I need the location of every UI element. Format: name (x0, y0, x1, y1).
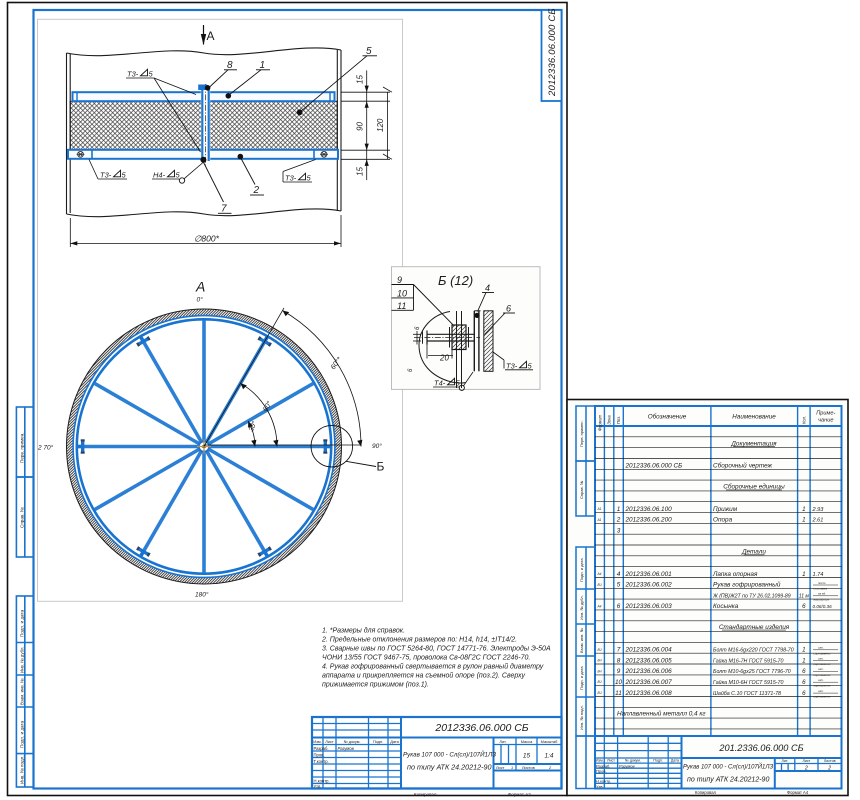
svg-text:Наименование: Наименование (732, 414, 776, 421)
svg-text:Т3-: Т3- (127, 70, 139, 79)
svg-text:Гайка М10-6Н ГОСТ 5915-70: Гайка М10-6Н ГОСТ 5915-70 (713, 679, 784, 686)
svg-text:2012336.06.000 СБ: 2012336.06.000 СБ (547, 8, 558, 97)
svg-text:А4: А4 (597, 572, 602, 576)
svg-text:20: 20 (439, 354, 449, 363)
svg-text:Т3-: Т3- (285, 174, 297, 183)
svg-text:Копировал: Копировал (695, 790, 717, 795)
svg-text:9: 9 (397, 275, 402, 285)
svg-text:Изм.: Изм. (313, 739, 321, 744)
svg-text:Утв.: Утв. (596, 784, 604, 789)
svg-text:А: А (207, 29, 215, 43)
svg-text:Формат: Формат (597, 414, 602, 431)
svg-text:Инв. № дубл.: Инв. № дубл. (19, 646, 24, 673)
svg-text:А1: А1 (597, 518, 602, 522)
svg-text:1.74: 1.74 (813, 572, 824, 578)
svg-text:6: 6 (802, 603, 806, 610)
svg-text:15: 15 (356, 167, 365, 176)
svg-text:4: 4 (485, 283, 490, 293)
svg-text:1: 1 (802, 571, 805, 578)
svg-text:2: 2 (804, 766, 808, 772)
svg-text:4. Рукав гофрированный свертыв: 4. Рукав гофрированный свертывается в ру… (322, 663, 544, 671)
svg-text:Приме-: Приме- (816, 411, 835, 417)
svg-text:аппарата и прикрепляется на съ: аппарата и прикрепляется на съемной опор… (322, 672, 526, 680)
svg-text:Формат А4: Формат А4 (787, 790, 809, 795)
svg-text:8: 8 (227, 60, 233, 71)
svg-text:7: 7 (617, 647, 621, 654)
svg-text:Т3-: Т3- (100, 171, 112, 180)
svg-text:Взам. инв. №: Взам. инв. № (579, 628, 584, 653)
svg-text:Б (12): Б (12) (438, 273, 473, 288)
svg-text:2012336.06.000 СБ: 2012336.06.000 СБ (625, 462, 683, 469)
svg-text:90°: 90° (372, 442, 382, 450)
svg-text:сортамент: сортамент (814, 695, 831, 699)
svg-text:Документация: Документация (730, 440, 777, 447)
svg-text:2012336.06.001: 2012336.06.001 (625, 571, 673, 578)
svg-text:Формат А2: Формат А2 (508, 792, 531, 797)
svg-text:Лапка опорная: Лапка опорная (712, 571, 758, 578)
svg-text:2012336.06.005: 2012336.06.005 (625, 657, 673, 664)
svg-text:1. *Размеры для справок.: 1. *Размеры для справок. (322, 627, 405, 635)
svg-text:пост.: пост. (818, 581, 826, 585)
svg-text:1: 1 (802, 517, 805, 524)
svg-text:находится: находится (814, 597, 830, 601)
svg-text:Инв. № подл.: Инв. № подл. (19, 755, 24, 784)
svg-text:8: 8 (617, 657, 621, 664)
svg-text:А4: А4 (597, 605, 602, 609)
svg-text:А: А (195, 279, 205, 295)
svg-text:Детали: Детали (741, 549, 766, 556)
svg-text:∅800*: ∅800* (194, 234, 220, 244)
svg-text:Поз.: Поз. (616, 416, 621, 424)
svg-text:2 70°: 2 70° (37, 444, 54, 452)
svg-text:Сборочные единицы: Сборочные единицы (723, 483, 785, 491)
svg-text:6: 6 (802, 668, 806, 675)
svg-text:чание: чание (818, 418, 833, 424)
svg-text:Прижим: Прижим (713, 506, 738, 513)
svg-text:шт.: шт. (818, 689, 824, 693)
svg-text:Разумов: Разумов (338, 746, 355, 751)
svg-text:Подп. и дата: Подп. и дата (19, 720, 24, 748)
svg-text:Справ. №: Справ. № (19, 507, 24, 528)
svg-text:Зона: Зона (607, 415, 612, 425)
svg-text:3. Сварные швы по ГОСТ 5264-80: 3. Сварные швы по ГОСТ 5264-80, ГОСТ 147… (322, 645, 551, 653)
svg-text:Сборочный чертеж: Сборочный чертеж (713, 461, 773, 469)
svg-text:10: 10 (397, 289, 407, 299)
svg-text:Инв. № дубл.: Инв. № дубл. (579, 595, 584, 620)
svg-text:2012336.06.008: 2012336.06.008 (625, 690, 673, 697)
svg-text:2012336.06.200: 2012336.06.200 (625, 517, 673, 524)
svg-text:2012336.06.007: 2012336.06.007 (625, 679, 673, 686)
svg-text:10: 10 (615, 679, 623, 686)
svg-text:за ед.: за ед. (817, 592, 826, 596)
svg-text:Лист: Лист (607, 759, 615, 763)
svg-text:15: 15 (356, 75, 365, 84)
svg-text:сортамент: сортамент (814, 684, 831, 688)
svg-text:2012336.06.002: 2012336.06.002 (625, 582, 673, 589)
svg-text:Утв.: Утв. (314, 784, 322, 789)
svg-text:2.61: 2.61 (812, 518, 824, 524)
svg-text:2: 2 (616, 517, 621, 524)
svg-text:6: 6 (802, 679, 806, 686)
svg-text:2. Предельные отклонения разме: 2. Предельные отклонения размеров по: Н1… (321, 636, 517, 644)
svg-text:Подп. и дата: Подп. и дата (579, 558, 584, 582)
svg-text:180°: 180° (195, 591, 209, 599)
svg-text:1: 1 (260, 60, 266, 71)
svg-text:Болт М10-6gх25 ГОСТ 7796-70: Болт М10-6gх25 ГОСТ 7796-70 (713, 669, 791, 675)
svg-text:11: 11 (615, 690, 622, 697)
svg-text:6: 6 (802, 690, 806, 697)
svg-text:Пров.: Пров. (314, 752, 325, 757)
svg-text:по типу АТК 24.20212-90: по типу АТК 24.20212-90 (407, 763, 492, 772)
svg-text:№ докум.: № докум. (343, 739, 360, 744)
svg-text:1: 1 (802, 657, 805, 664)
svg-text:2012336.06.100: 2012336.06.100 (625, 506, 673, 513)
svg-text:сортамент: сортамент (814, 651, 831, 655)
svg-text:4: 4 (617, 571, 621, 578)
svg-text:2: 2 (827, 766, 831, 772)
svg-text:Масса: Масса (521, 739, 533, 744)
svg-text:2: 2 (253, 185, 260, 196)
svg-text:Листов: Листов (824, 759, 836, 763)
svg-text:Дата: Дата (671, 759, 679, 763)
svg-text:1: 1 (802, 506, 805, 513)
svg-text:Разраб.: Разраб. (314, 746, 329, 751)
svg-text:ЧОНИ 13/55 ГОСТ 9467-75, прово: ЧОНИ 13/55 ГОСТ 9467-75, проволока Св-08… (322, 655, 530, 662)
svg-text:сортамент: сортамент (814, 662, 831, 666)
svg-text:сортамент: сортамент (814, 673, 831, 677)
svg-text:по типу АТК 24.20212-90: по типу АТК 24.20212-90 (687, 777, 769, 784)
svg-text:1: 1 (802, 647, 805, 654)
svg-text:0.06/0.36: 0.06/0.36 (813, 604, 833, 609)
svg-text:3: 3 (617, 527, 621, 534)
svg-text:А1: А1 (597, 507, 602, 511)
svg-text:шт.: шт. (818, 667, 824, 671)
svg-text:Т.контр.: Т.контр. (314, 759, 329, 764)
svg-text:Инв. № подл.: Инв. № подл. (579, 705, 584, 730)
svg-text:Лист: Лист (325, 739, 334, 744)
svg-text:11 м: 11 м (799, 593, 810, 599)
svg-text:шт.: шт. (818, 646, 824, 650)
svg-text:Рукав 107 000 - Сл(сл)/107Й1ЛЗ: Рукав 107 000 - Сл(сл)/107Й1ЛЗ (683, 763, 774, 771)
svg-text:шт.: шт. (818, 656, 824, 660)
svg-text:Н.контр.: Н.контр. (314, 778, 330, 783)
svg-text:2012336.06.003: 2012336.06.003 (625, 603, 673, 610)
svg-text:120: 120 (376, 118, 385, 132)
svg-text:Ж (ПВ)Ж2Т по ТУ 26.02.1099-89: Ж (ПВ)Ж2Т по ТУ 26.02.1099-89 (712, 593, 791, 599)
svg-text:Кол.: Кол. (802, 416, 807, 424)
svg-text:Подп. и дата: Подп. и дата (579, 666, 584, 690)
svg-text:Лист: Лист (802, 759, 810, 763)
svg-text:11: 11 (397, 301, 406, 311)
svg-text:15: 15 (523, 753, 531, 760)
svg-text:Рукав гофрированный: Рукав гофрированный (713, 581, 781, 589)
svg-text:Т3-: Т3- (506, 362, 518, 371)
svg-text:Б: Б (377, 460, 385, 474)
svg-text:Н4-: Н4- (153, 171, 166, 180)
svg-text:Болт М16-6gх220 ГОСТ 7798-70: Болт М16-6gх220 ГОСТ 7798-70 (713, 648, 794, 654)
svg-text:Масштаб: Масштаб (541, 739, 558, 744)
svg-text:Изм.: Изм. (596, 759, 604, 763)
svg-text:Подп.: Подп. (653, 759, 663, 763)
svg-text:2012336.06.000 СБ: 2012336.06.000 СБ (434, 722, 528, 734)
svg-text:№ докум.: № докум. (625, 759, 641, 763)
svg-text:Рукав 107 000 - Сл(сл)/107Й1ЛЗ: Рукав 107 000 - Сл(сл)/107Й1ЛЗ (403, 751, 496, 759)
svg-text:Перв. примен.: Перв. примен. (19, 432, 24, 463)
svg-text:1: 1 (511, 765, 513, 770)
svg-text:Подп. и дата: Подп. и дата (19, 609, 24, 637)
svg-text:поставка: поставка (814, 587, 828, 591)
svg-text:5: 5 (617, 582, 621, 589)
svg-text:Т4-: Т4- (434, 379, 446, 388)
svg-text:2012336.06.006: 2012336.06.006 (625, 668, 673, 675)
svg-text:1: 1 (617, 506, 621, 513)
svg-text:Листов: Листов (522, 765, 535, 770)
svg-text:201.2336.06.000 СБ: 201.2336.06.000 СБ (718, 743, 803, 753)
svg-text:1:4: 1:4 (544, 753, 553, 760)
svg-text:Опора: Опора (713, 517, 733, 524)
svg-text:Подп.: Подп. (373, 739, 383, 744)
svg-text:9: 9 (617, 668, 621, 675)
svg-text:Косынка: Косынка (713, 603, 739, 610)
svg-text:Дата: Дата (390, 739, 399, 744)
svg-text:шт.: шт. (818, 678, 824, 682)
svg-text:0°: 0° (197, 296, 204, 304)
svg-text:Гайка М16-7Н ГОСТ 5915-70: Гайка М16-7Н ГОСТ 5915-70 (713, 657, 784, 664)
svg-text:Обозначение: Обозначение (648, 413, 687, 421)
svg-text:Шайба С.10 ГОСТ 11371-78: Шайба С.10 ГОСТ 11371-78 (713, 690, 781, 697)
svg-text:Копировал: Копировал (414, 792, 437, 797)
svg-text:Перв. примен.: Перв. примен. (579, 420, 584, 447)
svg-text:Взам. инв. №: Взам. инв. № (19, 678, 24, 705)
svg-text:90: 90 (356, 122, 365, 131)
svg-text:Наплавленный металл 0,4 кг: Наплавленный металл 0,4 кг (617, 709, 706, 717)
svg-text:2012336.06.004: 2012336.06.004 (625, 647, 673, 654)
svg-text:Стандартные изделия: Стандартные изделия (719, 623, 790, 631)
svg-text:Разумов: Разумов (619, 763, 635, 768)
svg-text:Лист: Лист (496, 765, 505, 770)
svg-text:2.93: 2.93 (812, 507, 825, 513)
svg-text:Лит.: Лит. (781, 759, 788, 763)
svg-text:Справ. №: Справ. № (579, 481, 584, 499)
svg-text:6: 6 (617, 603, 621, 610)
svg-text:Пров.: Пров. (596, 769, 607, 774)
svg-text:прижимается прижимом (поз.1).: прижимается прижимом (поз.1). (322, 682, 429, 689)
svg-text:6: 6 (506, 304, 511, 314)
svg-text:Лит.: Лит. (499, 739, 506, 744)
